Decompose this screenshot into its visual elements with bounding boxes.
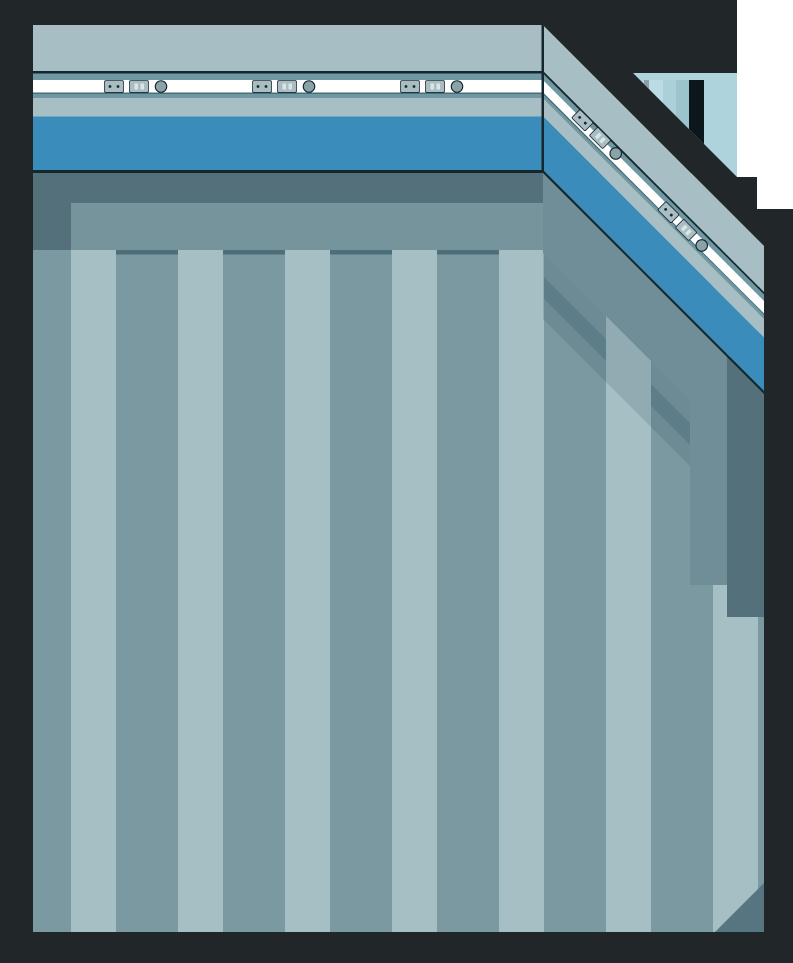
wall-teal-rail [33, 94, 543, 98]
power-outlet-group [252, 80, 315, 93]
wall-corner-edge [542, 25, 545, 173]
wall-mid-band [33, 98, 543, 117]
cutout-top-right [737, 0, 793, 177]
front-wall-outlets [104, 80, 463, 93]
floor-stripe [33, 173, 71, 932]
power-outlet-group [400, 80, 463, 93]
right-shadow-column-mid [690, 320, 727, 585]
floor [33, 173, 764, 932]
stripe-shadow-cap [116, 250, 178, 255]
stripe-shadow-cap [330, 250, 392, 255]
floor-stripe [223, 173, 285, 932]
room-illustration [0, 0, 793, 963]
floor-stripe [116, 173, 178, 932]
illustration-stage [0, 0, 793, 963]
stripe-shadow-cap [223, 250, 285, 255]
wall-base-line [33, 170, 543, 173]
wall-teal-rail [33, 74, 543, 81]
wall-upper-band [33, 25, 543, 71]
floor-stripe [437, 173, 499, 932]
wainscot-blue-band [33, 117, 543, 171]
right-shadow-column-dark [727, 357, 764, 617]
room-interior [33, 25, 766, 932]
cutout-right-notch [757, 176, 793, 209]
floor-stripe [330, 173, 392, 932]
wall-trim-line [33, 71, 543, 74]
stripe-shadow-cap [437, 250, 499, 255]
front-wall [33, 25, 543, 173]
shadow-left-column [33, 203, 71, 250]
power-outlet-group [104, 80, 167, 93]
